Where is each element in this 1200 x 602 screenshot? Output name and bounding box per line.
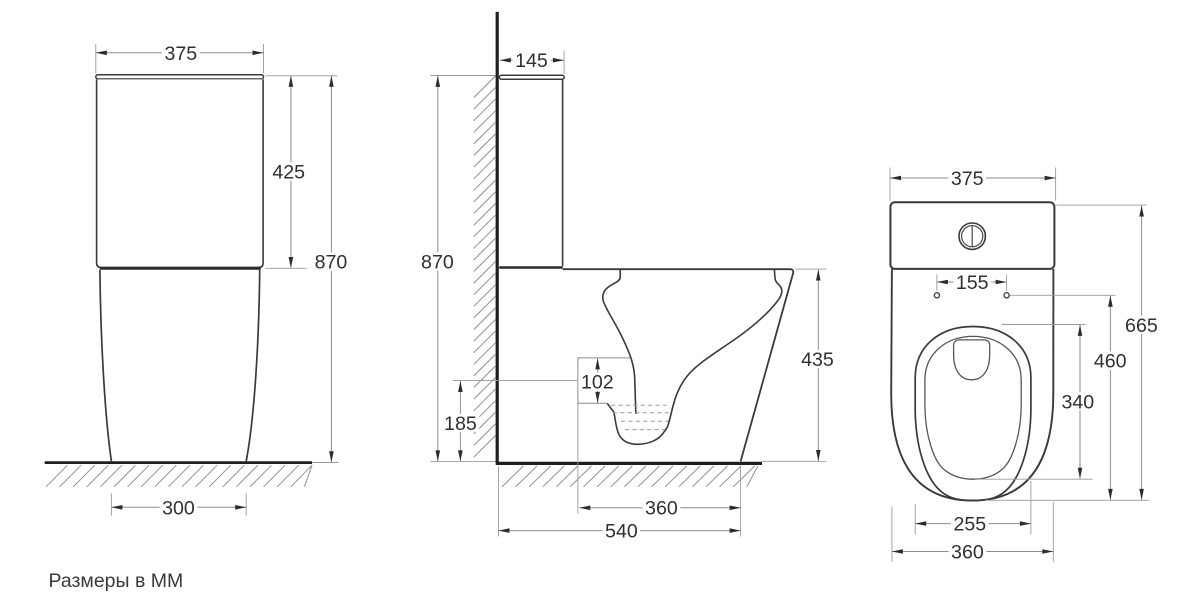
svg-text:Размеры в ММ: Размеры в ММ (49, 570, 184, 592)
svg-text:665: 665 (1125, 315, 1158, 337)
svg-text:300: 300 (162, 497, 195, 519)
svg-text:375: 375 (951, 168, 984, 190)
svg-text:375: 375 (164, 43, 197, 65)
svg-text:255: 255 (953, 514, 986, 536)
svg-text:145: 145 (515, 50, 548, 72)
svg-text:425: 425 (272, 162, 305, 184)
svg-text:870: 870 (421, 252, 454, 274)
svg-text:435: 435 (801, 349, 834, 371)
svg-text:340: 340 (1061, 391, 1094, 413)
svg-text:155: 155 (956, 272, 989, 294)
svg-text:540: 540 (605, 520, 638, 542)
svg-text:102: 102 (581, 372, 614, 394)
svg-text:360: 360 (951, 542, 984, 564)
svg-text:870: 870 (315, 252, 348, 274)
svg-text:360: 360 (645, 498, 678, 520)
svg-text:460: 460 (1094, 351, 1127, 373)
svg-text:185: 185 (444, 413, 477, 435)
